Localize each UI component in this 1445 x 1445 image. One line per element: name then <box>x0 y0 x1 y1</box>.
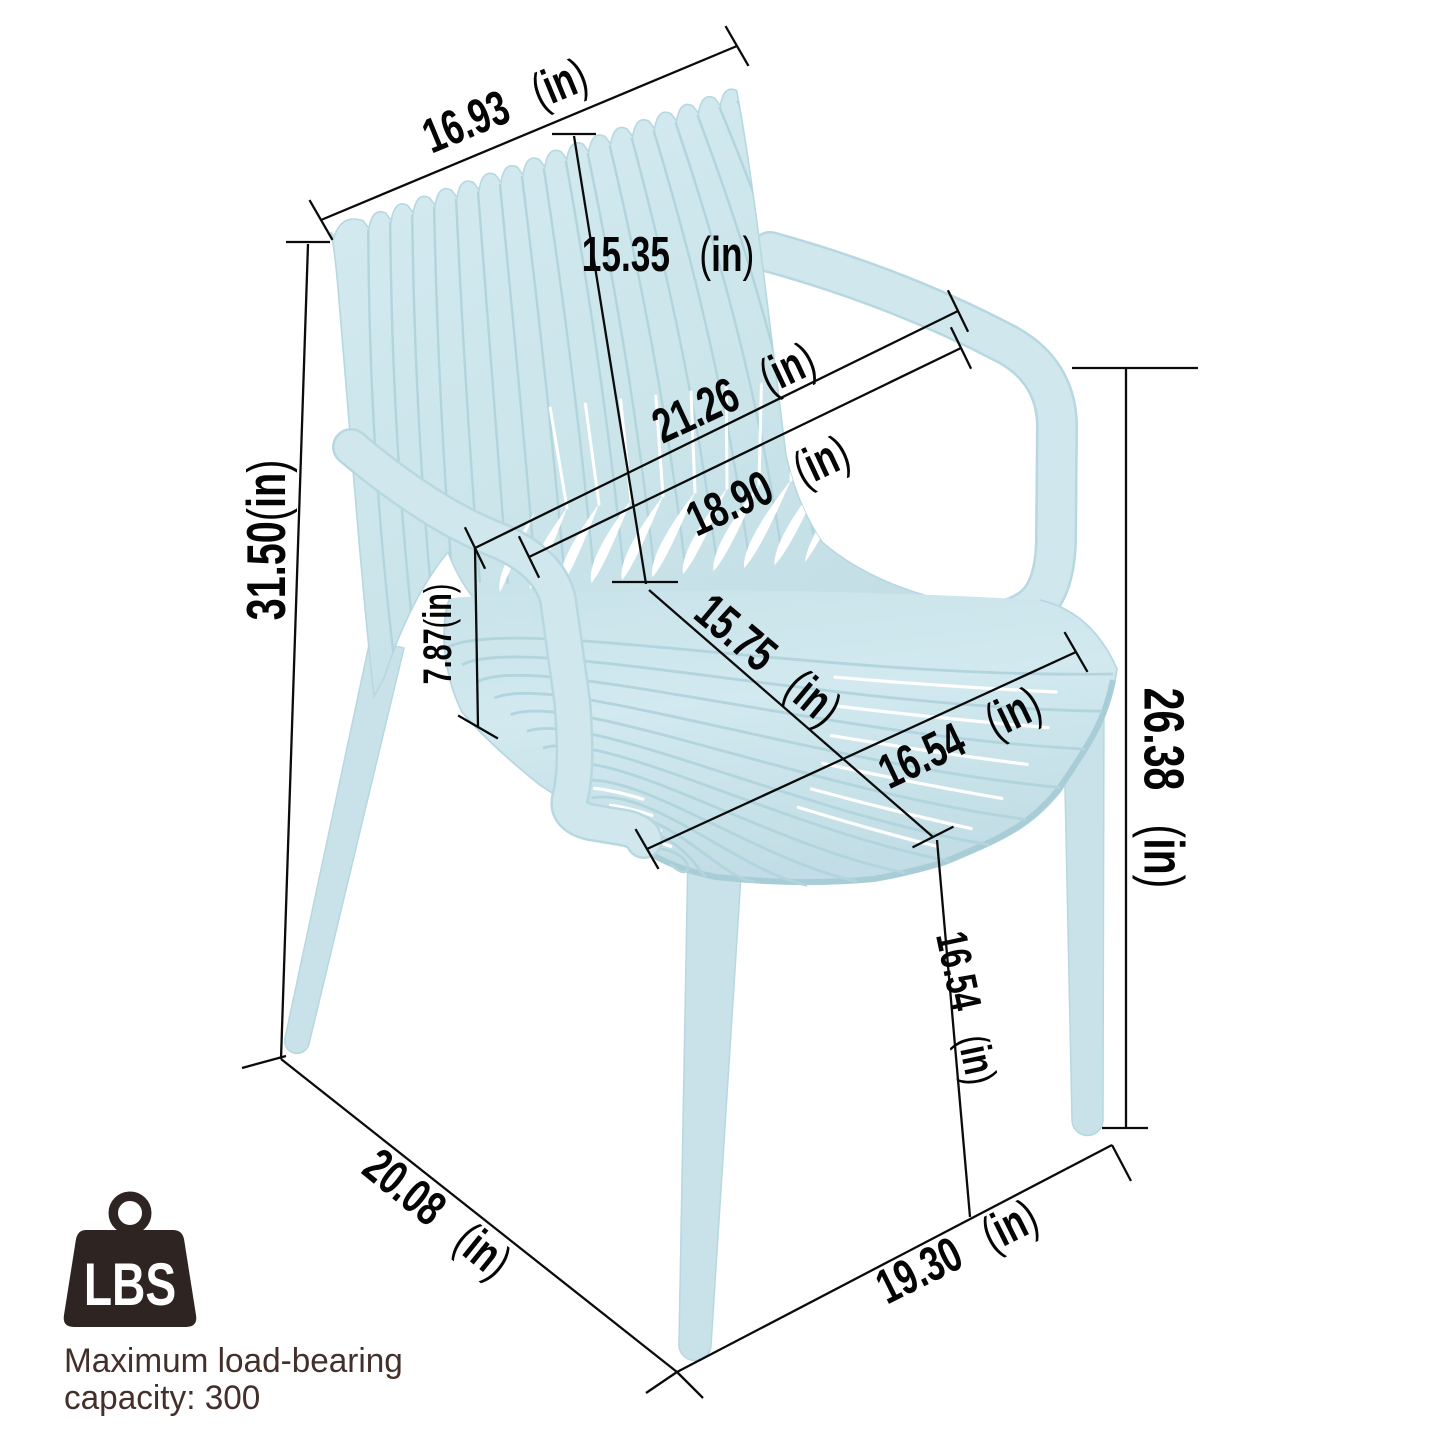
svg-text:26.38 (in): 26.38 (in) <box>1132 688 1196 889</box>
svg-text:31.50(in): 31.50(in) <box>237 460 298 621</box>
svg-text:16.54 (in): 16.54 (in) <box>926 927 1006 1089</box>
svg-text:16.93 (in): 16.93 (in) <box>415 48 595 165</box>
svg-text:capacity: 300: capacity: 300 <box>64 1380 260 1417</box>
svg-text:20.08 (in): 20.08 (in) <box>353 1138 522 1289</box>
svg-text:LBS: LBS <box>84 1252 176 1318</box>
svg-text:19.30 (in): 19.30 (in) <box>868 1189 1047 1315</box>
svg-text:15.35 (in): 15.35 (in) <box>582 227 755 282</box>
svg-text:Maximum load-bearing: Maximum load-bearing <box>64 1343 403 1380</box>
svg-text:7.87(in): 7.87(in) <box>416 584 461 685</box>
